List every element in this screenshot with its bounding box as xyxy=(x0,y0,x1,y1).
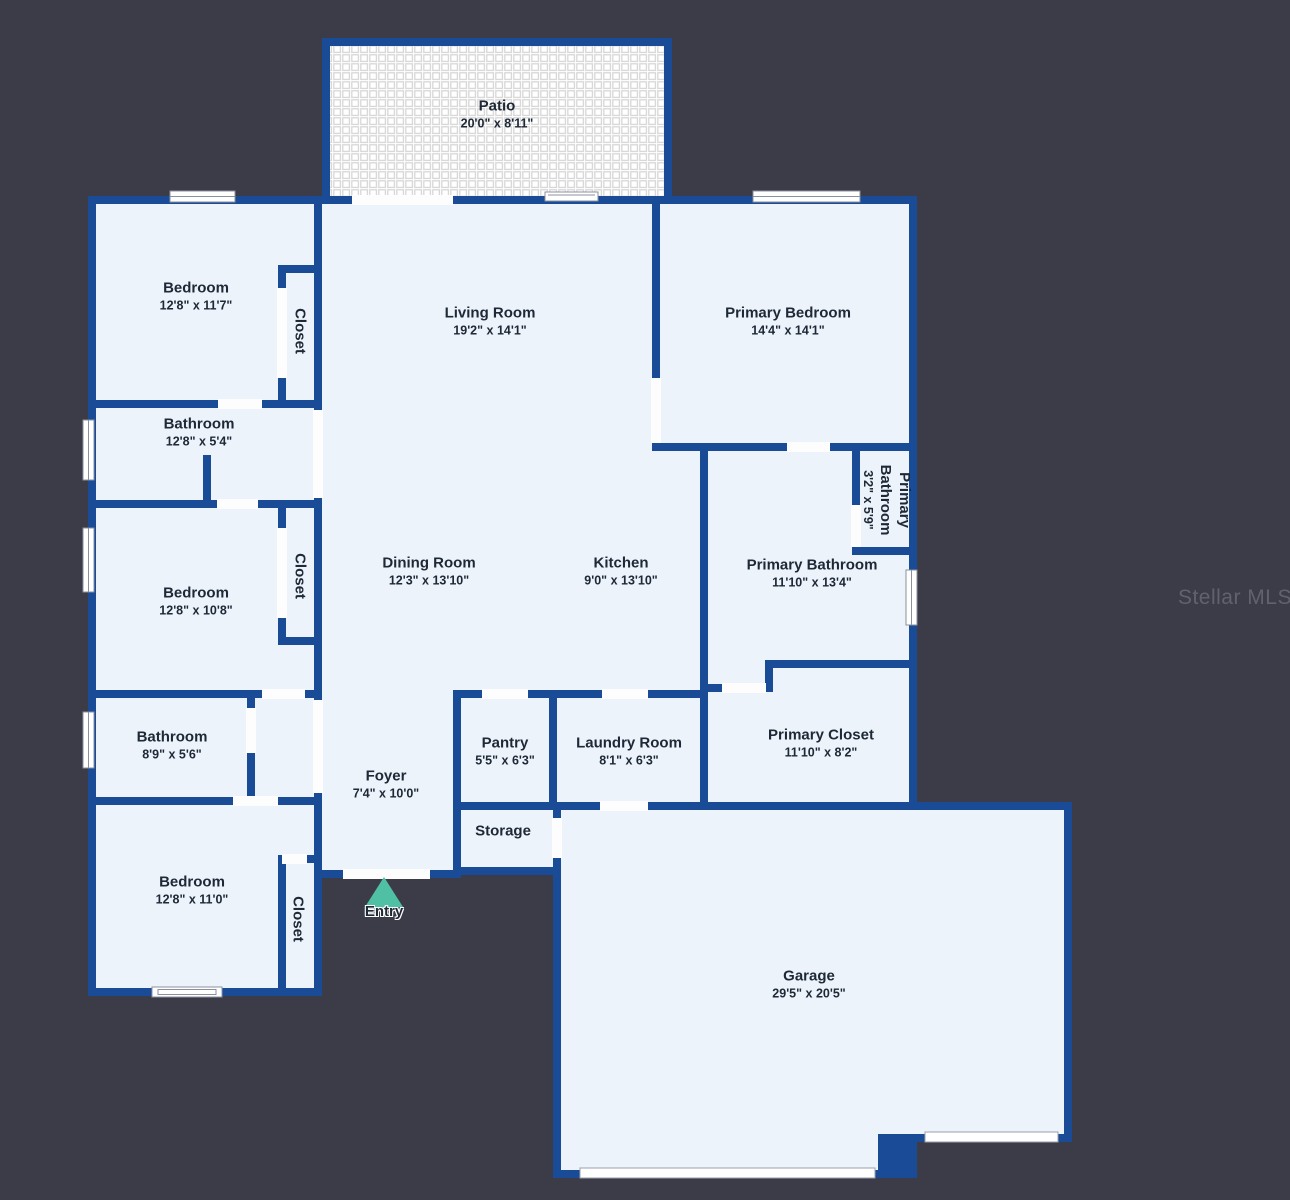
entry-door-opening xyxy=(343,869,430,879)
stellar-mls-watermark: Stellar MLS xyxy=(1178,586,1290,610)
sliding-door xyxy=(545,192,598,201)
floor-plan-drawing xyxy=(0,0,1290,1200)
entry-label: Entry xyxy=(365,903,403,920)
window-bedroom-3 xyxy=(152,987,222,997)
room-fills xyxy=(88,196,1072,1178)
floor-plan-page: Patio20'0" x 8'11"Bedroom12'8" x 11'7"Cl… xyxy=(0,0,1290,1200)
patio-area xyxy=(330,46,664,196)
